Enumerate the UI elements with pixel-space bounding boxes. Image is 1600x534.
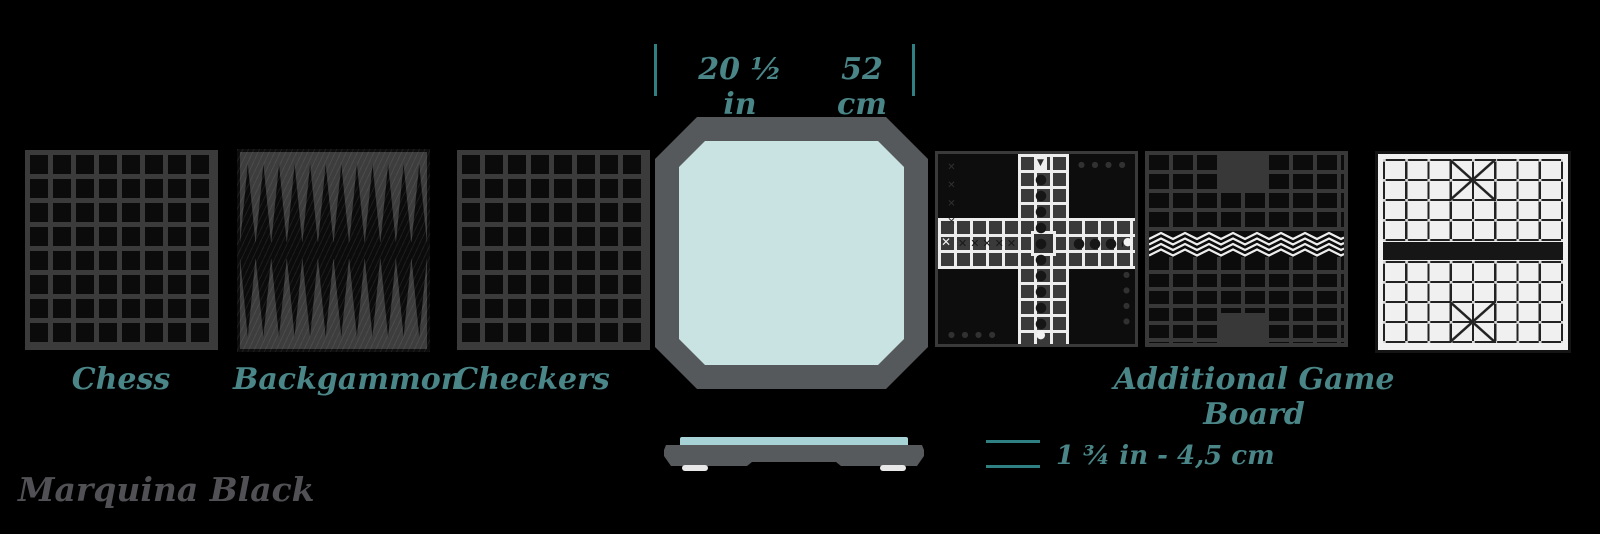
board-top-view-graphic bbox=[655, 117, 928, 389]
game-board-dimensions-diagram: 20 ½ in 52 cm bbox=[0, 0, 1600, 534]
river-zigzag-graphic bbox=[1149, 231, 1344, 257]
pachisi-end-circle-icon: ● bbox=[1123, 235, 1133, 248]
board-side-view-graphic bbox=[664, 436, 924, 474]
additional-game-board-label: Additional Game Board bbox=[1104, 362, 1404, 432]
chess-board-graphic bbox=[25, 150, 218, 350]
board-surface bbox=[679, 141, 904, 365]
checkers-board-graphic bbox=[457, 150, 650, 350]
chess-label: Chess bbox=[41, 362, 201, 397]
pachisi-corner-marks-top-right: ● ● ● ● bbox=[1078, 160, 1128, 169]
xiangqi-board-graphic bbox=[1375, 151, 1571, 353]
river-board-top-block bbox=[1221, 155, 1265, 189]
pachisi-start-triangle-icon: ▼ bbox=[1034, 157, 1047, 170]
xiangqi-palace-bottom-icon bbox=[1449, 301, 1496, 343]
river-board-bottom-block bbox=[1221, 313, 1265, 343]
side-view-foot-left bbox=[682, 465, 708, 471]
backgammon-board-graphic bbox=[237, 149, 430, 352]
thickness-label: 1 ¾ in - 4,5 cm bbox=[1056, 441, 1275, 471]
pachisi-piece-row bbox=[1071, 238, 1123, 250]
width-dimension-tick-right bbox=[912, 44, 915, 96]
side-view-foot-right bbox=[880, 465, 906, 471]
backgammon-board-svg bbox=[237, 149, 430, 352]
pachisi-entry-cross-icon: ✕ bbox=[941, 235, 951, 249]
pachisi-corner-marks-bottom-left: ● ● ● ● bbox=[948, 330, 998, 339]
material-name-label: Marquina Black bbox=[18, 470, 315, 509]
pachisi-left-arm-marks: ✕✕✕✕✕ bbox=[958, 237, 1019, 250]
pachisi-piece-column bbox=[1035, 172, 1047, 330]
width-dimension-tick-left bbox=[654, 44, 657, 96]
thickness-tick-top bbox=[986, 440, 1040, 443]
width-imperial-label: 20 ½ in bbox=[680, 52, 800, 122]
backgammon-bar bbox=[240, 242, 427, 259]
xiangqi-river bbox=[1383, 242, 1563, 260]
pachisi-corner-marks-top-left: ✕ ✕ ✕ ✕ bbox=[946, 162, 957, 230]
checkers-label: Checkers bbox=[432, 362, 632, 397]
river-board-graphic bbox=[1145, 151, 1348, 347]
pachisi-corner-marks-bottom-right: ● ● ● ● bbox=[1122, 270, 1131, 328]
thickness-tick-bottom bbox=[986, 465, 1040, 468]
pachisi-board-graphic: ▼ ✕ ● ● ✕✕✕✕✕ ✕ ✕ ✕ ✕ ● ● ● ● ● ● ● ● ● … bbox=[935, 151, 1138, 347]
side-view-body bbox=[664, 445, 924, 466]
xiangqi-palace-top-icon bbox=[1449, 159, 1496, 201]
backgammon-label: Backgammon bbox=[233, 362, 433, 397]
width-metric-label: 52 cm bbox=[812, 52, 912, 122]
